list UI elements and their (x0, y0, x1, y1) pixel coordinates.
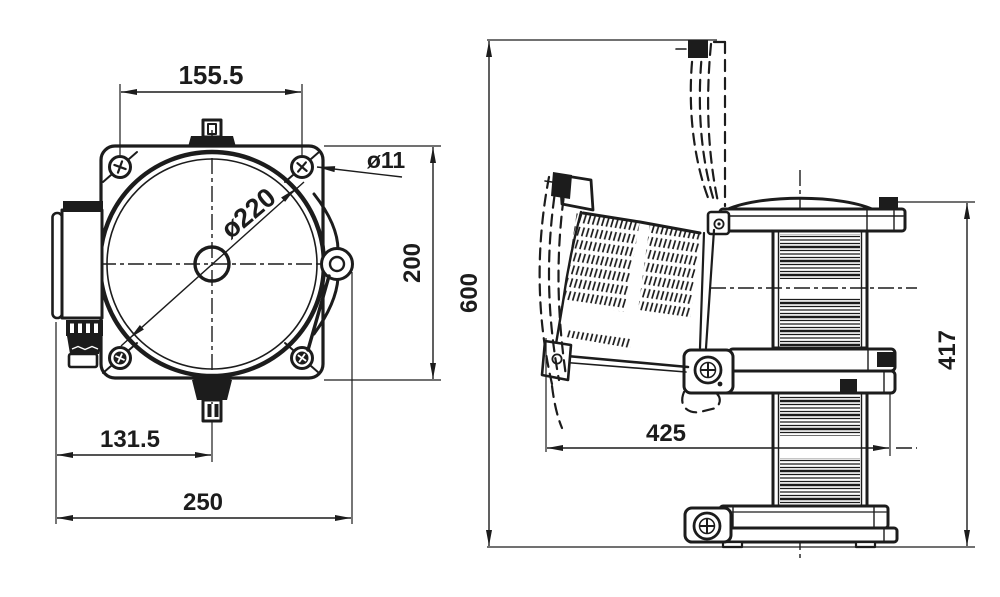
dim-dia11-label: ø11 (367, 147, 406, 173)
side-view: 600 425 417 (456, 40, 975, 560)
technical-drawing-page: ø220 155.5 ø11 200 (0, 0, 1000, 597)
dimension-overall-height: 600 (456, 40, 975, 547)
drawing-svg: ø220 155.5 ø11 200 (0, 0, 1000, 597)
dimension-lantern-height: 417 (898, 202, 975, 546)
dome-cap (708, 197, 905, 234)
door-cap (545, 172, 593, 210)
door-closed-screw (688, 40, 708, 58)
middle-flange (720, 349, 895, 393)
dim-600-label: 600 (456, 273, 483, 313)
dim-155-label: 155.5 (178, 60, 243, 90)
dim-417-label: 417 (934, 330, 961, 370)
upper-lens-section (773, 231, 867, 348)
dim-250-label: 250 (183, 489, 223, 516)
lower-lens-section (773, 393, 867, 506)
base-bracket (685, 508, 731, 542)
dim-200-label: 200 (399, 243, 426, 283)
dimension-hole-diameter: ø11 (317, 147, 405, 177)
cap-screw (879, 197, 898, 209)
base-section (685, 506, 897, 547)
dim-131-label: 131.5 (100, 426, 160, 453)
front-view: ø220 155.5 ø11 200 (53, 60, 442, 524)
opened-lens-door (542, 172, 701, 380)
door-cap-screw (551, 172, 572, 199)
door-closed-position-dashed (676, 40, 725, 206)
cable-junction-box (53, 201, 104, 367)
dim-425-label: 425 (646, 420, 686, 447)
hinge-bracket (684, 350, 733, 393)
dimension-center-offset: 131.5 (57, 422, 212, 462)
